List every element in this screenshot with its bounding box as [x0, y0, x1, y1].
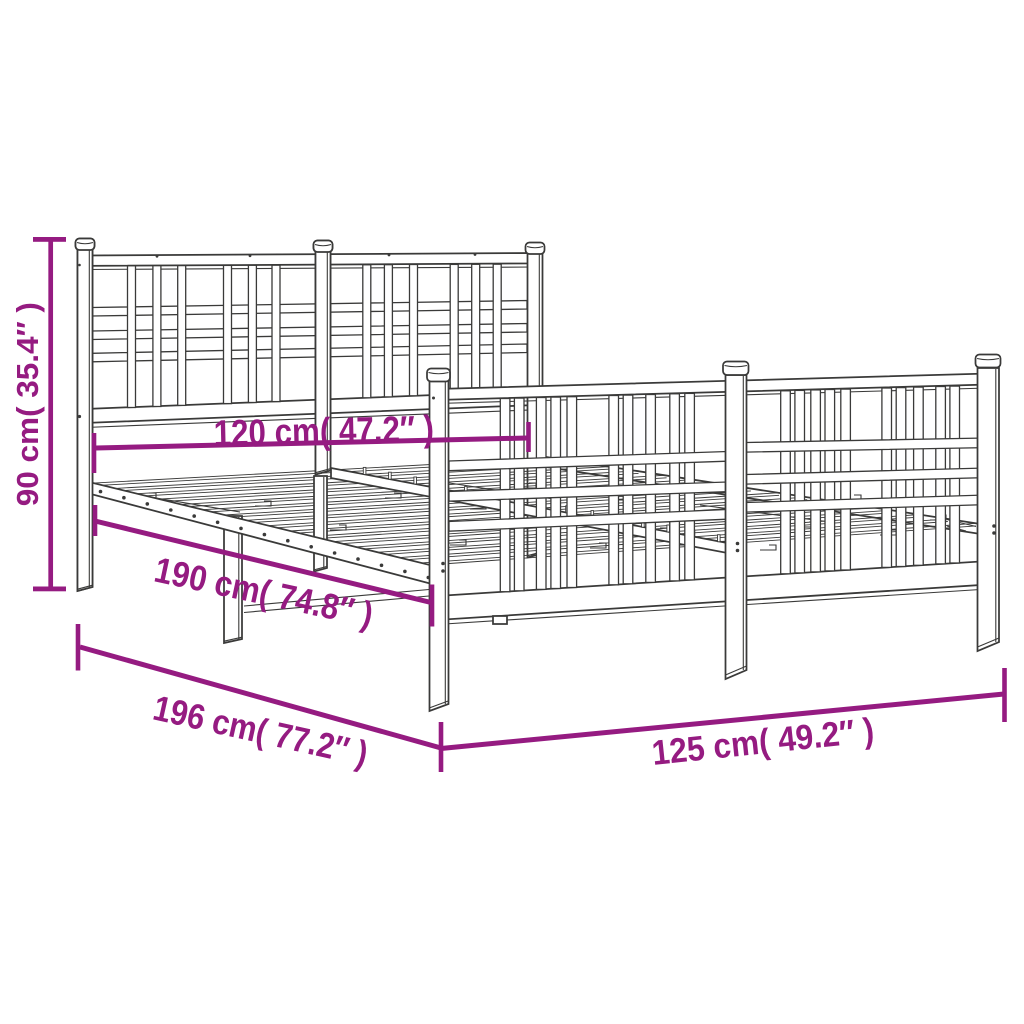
svg-text:120 cm( 47.2″ ): 120 cm( 47.2″ ) — [213, 409, 434, 455]
svg-text:90 cm( 35.4″ ): 90 cm( 35.4″ ) — [10, 302, 44, 506]
